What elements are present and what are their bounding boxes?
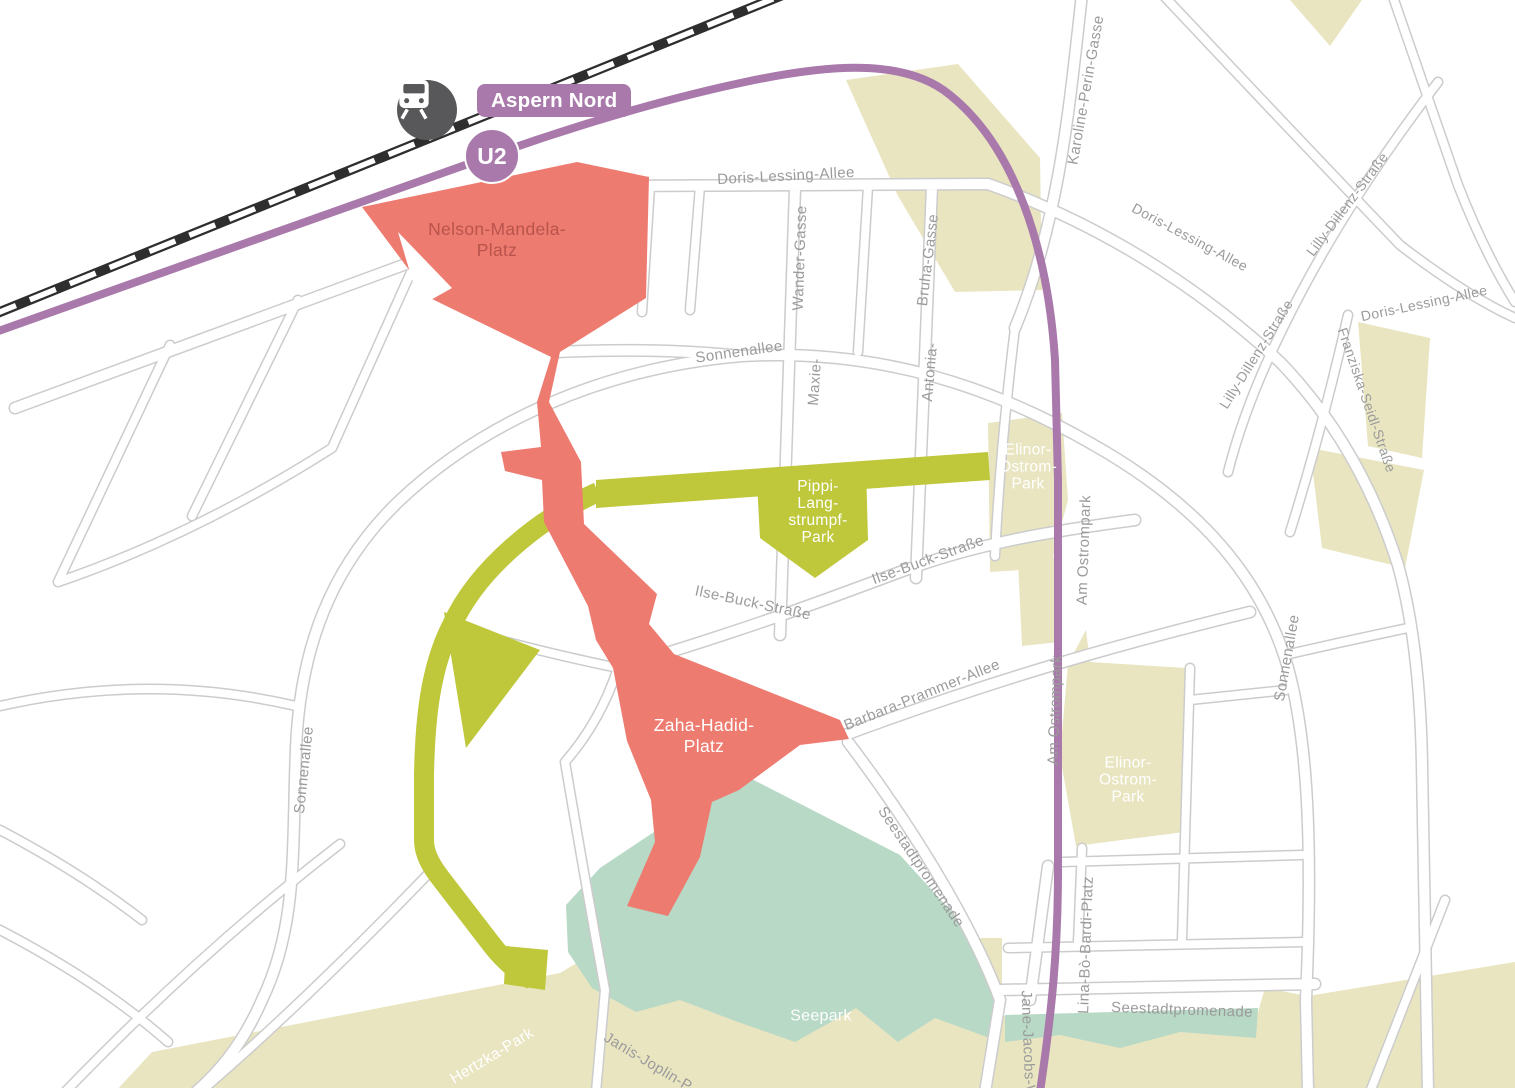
park-area-topright-corner — [1290, 0, 1362, 46]
green-wedge — [444, 612, 540, 748]
train-icon — [397, 80, 431, 120]
zaha-hadid-platz-label: Zaha-Hadid-Platz — [654, 715, 755, 757]
map-canvas — [0, 0, 1515, 1088]
park-area-right-lower — [1310, 448, 1424, 568]
street-label-maxie: Maxie- — [805, 358, 825, 406]
elinor-ostrom-park-lower-label: Elinor-Ostrom- Park — [1099, 755, 1157, 806]
nelson-mandela-platz-label: Nelson-Mandela-Platz — [428, 219, 566, 261]
park-area-mid — [1018, 556, 1060, 646]
aspern-seestadt-map: Aspern Nord U2 Nelson-Mandela-Platz Zaha… — [0, 0, 1515, 1088]
green-end-block — [504, 946, 548, 990]
elinor-ostrom-park-upper-label: Elinor-Ostrom- Park — [999, 442, 1057, 493]
seepark-lake-shape — [566, 772, 998, 1042]
station-name-badge: Aspern Nord — [477, 84, 631, 117]
seepark-label: Seepark — [790, 1008, 852, 1025]
pippi-langstrumpf-park-label: Pippi-Lang- strumpf-Park — [788, 478, 847, 546]
u2-line-badge: U2 — [464, 128, 520, 184]
train-station-marker — [397, 80, 457, 140]
